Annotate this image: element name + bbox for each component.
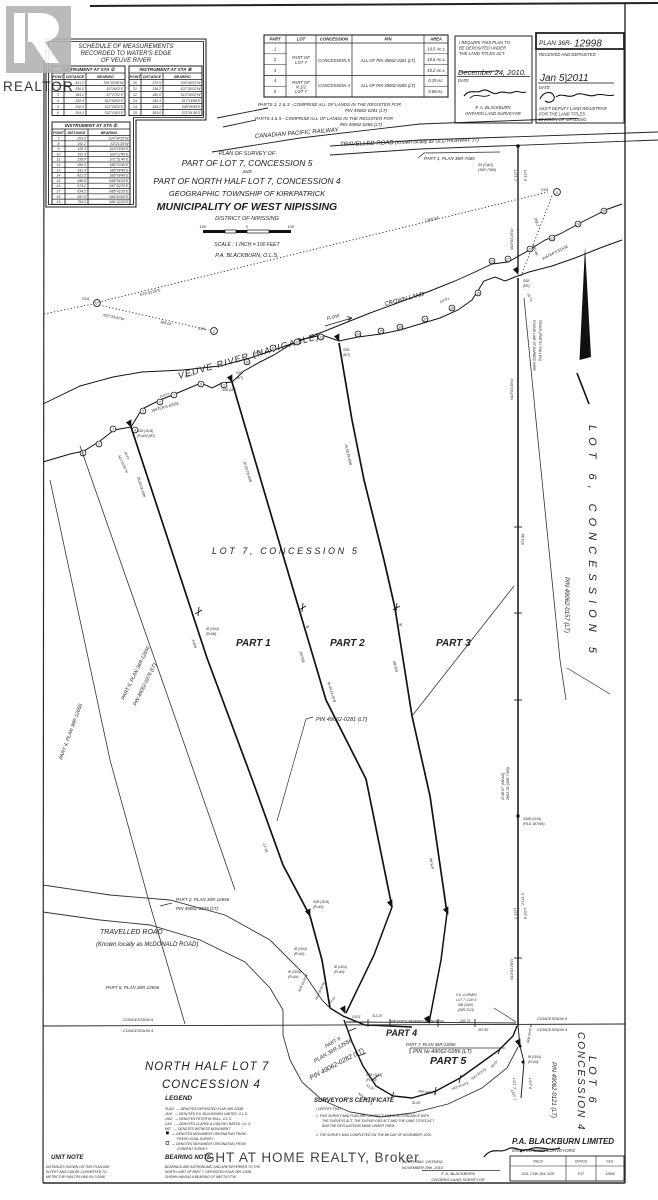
svg-text:2: 2	[97, 442, 100, 446]
svg-text:PART 6, PLAN 36R-12656: PART 6, PLAN 36R-12656	[106, 985, 160, 990]
svg-text:LOT 6: LOT 6	[528, 1078, 533, 1090]
svg-text:PARTS 4 & 5 - COMPRISE ALL OF: PARTS 4 & 5 - COMPRISE ALL OF LANDS IN T…	[255, 116, 394, 121]
svg-text:S24°44'20"W: S24°44'20"W	[109, 137, 130, 141]
svg-text:25: 25	[601, 209, 606, 213]
svg-text:6: 6	[57, 111, 59, 115]
svg-text:NORTH LIMIT OF PART 7, DEPOSIT: NORTH LIMIT OF PART 7, DEPOSITED PLAN 36…	[165, 1170, 252, 1174]
svg-text:239.0': 239.0'	[76, 158, 86, 162]
svg-text:14: 14	[356, 332, 360, 336]
svg-text:BEARINGS ARE ASTRONOMIC AND AR: BEARINGS ARE ASTRONOMIC AND ARE REFERRED…	[165, 1165, 261, 1169]
svg-text:12850: 12850	[605, 1172, 615, 1176]
svg-text:FILE: FILE	[606, 1160, 614, 1164]
svg-text:PIN 49062-0286 (LT): PIN 49062-0286 (LT)	[340, 122, 382, 127]
svg-text:128.3': 128.3'	[77, 147, 86, 151]
svg-text:N10°03'20"W: N10°03'20"W	[510, 378, 514, 400]
svg-text:PART OF LOT 7, CONCESSION 5: PART OF LOT 7, CONCESSION 5	[182, 158, 313, 168]
svg-text:634.2': 634.2'	[77, 190, 86, 194]
svg-text:FIELD: FIELD	[533, 1160, 543, 1164]
svg-text:8: 8	[556, 191, 558, 195]
svg-text:P. A. BLACKBURN: P. A. BLACKBURN	[475, 105, 511, 110]
svg-text:— DENOTES MONUMENT ORIGINATING: — DENOTES MONUMENT ORIGINATING FROM	[171, 1132, 246, 1136]
svg-text:DISTANCE: DISTANCE	[143, 75, 162, 79]
svg-text:PIN 49062-0121 (LT): PIN 49062-0121 (LT)	[550, 1062, 556, 1118]
svg-text:PIN 49062-0281 (LT): PIN 49062-0281 (LT)	[345, 108, 387, 113]
svg-text:CONCESSION 4: CONCESSION 4	[162, 1079, 261, 1091]
svg-text:ONTARIO LAND SURVEYORS: ONTARIO LAND SURVEYORS	[512, 1148, 575, 1153]
svg-text:UNIT NOTE: UNIT NOTE	[51, 1155, 84, 1161]
svg-text:24: 24	[132, 105, 137, 109]
svg-text:14: 14	[57, 174, 61, 178]
svg-text:LOT 7: LOT 7	[513, 170, 518, 182]
svg-text:LOT: LOT	[297, 37, 306, 42]
svg-text:N88°23'40"W (REFERENCE L BEARI: N88°23'40"W (REFERENCE L BEARING)	[390, 1019, 444, 1023]
svg-text:(WT): (WT)	[236, 376, 243, 380]
svg-text:FENCE (PARTLY FALLEN): FENCE (PARTLY FALLEN)	[538, 320, 542, 361]
svg-text:S37°35'02"W: S37°35'02"W	[181, 87, 202, 91]
svg-text:(MT): (MT)	[523, 284, 530, 288]
svg-text:ONTARIO LAND SURVEYOR: ONTARIO LAND SURVEYOR	[465, 111, 521, 116]
svg-text:NORTH HALF LOT 7: NORTH HALF LOT 7	[145, 1061, 269, 1073]
svg-text:S32°10'02"E: S32°10'02"E	[104, 111, 124, 115]
svg-text:0.35 Ac.: 0.35 Ac.	[428, 78, 443, 83]
svg-text:PIN 49062-0281 (LT): PIN 49062-0281 (LT)	[316, 717, 367, 723]
svg-text:(PLAN): (PLAN)	[294, 952, 304, 956]
svg-text:PJT: PJT	[578, 1172, 585, 1176]
svg-text:LOT 7, CONCESSION 5: LOT 7, CONCESSION 5	[212, 546, 359, 556]
svg-text:(PLAN): (PLAN)	[288, 975, 298, 979]
svg-text:S33°49'02"W: S33°49'02"W	[181, 81, 202, 85]
svg-text:PRIOR LEGAL SURVEY: PRIOR LEGAL SURVEY	[177, 1137, 214, 1141]
svg-text:PIN 49062-0275 (LT): PIN 49062-0275 (LT)	[176, 906, 218, 911]
svg-text:S70°01'58"E: S70°01'58"E	[181, 111, 201, 115]
svg-text:FOR THE LAND TITLES: FOR THE LAND TITLES	[539, 112, 585, 117]
svg-text:CONCESSION 4: CONCESSION 4	[575, 1032, 586, 1132]
svg-text:S.E. CORNER: S.E. CORNER	[456, 993, 477, 997]
svg-text:(PLAN): (PLAN)	[313, 905, 323, 909]
svg-text:DISTANCE: DISTANCE	[67, 131, 86, 135]
svg-text:LOT 7: LOT 7	[295, 60, 307, 65]
svg-text:LOT 6: LOT 6	[523, 908, 528, 920]
svg-text:SSB: SSB	[523, 279, 530, 283]
svg-text:AND: AND	[241, 169, 252, 174]
svg-text:PART 5: PART 5	[430, 1055, 467, 1067]
svg-text:15: 15	[57, 179, 61, 183]
svg-text:SCALE : 1 INCH = 100 FEET: SCALE : 1 INCH = 100 FEET	[214, 242, 280, 248]
svg-text:183.0': 183.0'	[152, 111, 161, 115]
svg-text:BE DEPOSITED UNDER: BE DEPOSITED UNDER	[459, 46, 506, 51]
svg-text:LOT 6: LOT 6	[586, 1056, 598, 1107]
svg-text:245.74': 245.74'	[459, 1019, 471, 1023]
svg-text:145.3': 145.3'	[152, 99, 161, 103]
svg-text:1: 1	[274, 47, 276, 52]
svg-text:(PLAN): (PLAN)	[334, 970, 344, 974]
svg-text:WIT — DENOTES WITNESS MONUME: WIT — DENOTES WITNESS MONUMENT	[165, 1127, 231, 1131]
svg-text:(PLAN): (PLAN)	[366, 1078, 376, 1082]
svg-text:P.A. BLACKBURN LIMITED: P.A. BLACKBURN LIMITED	[512, 1137, 614, 1146]
svg-text:N87°02'20"E: N87°02'20"E	[109, 184, 129, 188]
svg-text:16: 16	[398, 325, 402, 329]
svg-text:[PLAN]: [PLAN]	[205, 632, 216, 636]
svg-text:N81°43'20"E: N81°43'20"E	[109, 200, 129, 204]
svg-text:PLAN OF SURVEY OF: PLAN OF SURVEY OF	[219, 151, 276, 157]
svg-text:— DENOTES MONUMENT ORIGINATING: — DENOTES MONUMENT ORIGINATING FROM	[171, 1142, 246, 1146]
svg-text:STA: STA	[82, 297, 90, 301]
svg-text:PART 2, PLAN 36R-12656: PART 2, PLAN 36R-12656	[176, 897, 230, 902]
svg-text:PLAN 36R-: PLAN 36R-	[539, 40, 573, 47]
svg-text:PARTS 1, 2 & 3 - COMPRISE ALL: PARTS 1, 2 & 3 - COMPRISE ALL OF LANDS I…	[258, 102, 402, 107]
svg-text:OFFICE: OFFICE	[575, 1160, 588, 1164]
svg-text:10.5 Ac.±: 10.5 Ac.±	[427, 47, 445, 52]
svg-text:S17°18'58"E: S17°18'58"E	[181, 99, 201, 103]
svg-text:S89°08'40"E: S89°08'40"E	[109, 174, 129, 178]
svg-text:331.4': 331.4'	[77, 168, 86, 172]
svg-text:421.2': 421.2'	[75, 81, 84, 85]
svg-text:457.99': 457.99'	[478, 1028, 489, 1032]
svg-text:THE LAND TITLES ACT.: THE LAND TITLES ACT.	[459, 51, 505, 56]
svg-text:P.A. BLACKBURN, O.L.S.: P.A. BLACKBURN, O.L.S.	[215, 253, 278, 259]
svg-text:INSTRUMENT AT STA ②: INSTRUMENT AT STA ②	[65, 123, 118, 128]
svg-text:CONCESSION 4: CONCESSION 4	[537, 1027, 568, 1032]
svg-text:364.1': 364.1'	[75, 93, 84, 97]
svg-text:FOUND LINE OF BARBED WIRE: FOUND LINE OF BARBED WIRE	[532, 320, 536, 372]
svg-text:CONCESSION 4: CONCESSION 4	[123, 1028, 154, 1033]
svg-text:IB (1104): IB (1104)	[288, 970, 301, 974]
svg-text:318.3': 318.3'	[75, 105, 84, 109]
svg-text:51.69': 51.69'	[412, 1101, 421, 1105]
svg-text:THE SURVEYS ACT, THE SURVEYORS: THE SURVEYS ACT, THE SURVEYORS ACT AND T…	[322, 1119, 435, 1123]
svg-text:19: 19	[57, 200, 61, 204]
svg-text:12998: 12998	[574, 39, 602, 50]
svg-text:18: 18	[450, 306, 454, 310]
svg-text:1552 — DENOTES PETER M. BULL: 1552 — DENOTES PETER M. BULL, O.L.S.	[165, 1117, 232, 1121]
svg-text:324.3': 324.3'	[75, 111, 84, 115]
svg-text:0.88 Ac.: 0.88 Ac.	[428, 89, 443, 94]
svg-text:(FILE 187096): (FILE 187096)	[523, 822, 545, 826]
svg-text:100': 100'	[199, 225, 206, 229]
svg-text:269.3': 269.3'	[76, 163, 86, 167]
svg-text:13: 13	[57, 168, 61, 172]
svg-text:SIB (1002): SIB (1002)	[458, 1003, 473, 1007]
svg-text:S85°08'40"E: S85°08'40"E	[109, 168, 129, 172]
svg-text:N10°03'20"W: N10°03'20"W	[510, 228, 514, 250]
svg-text:313.25': 313.25'	[372, 1014, 383, 1018]
svg-text:2. THE SURVEY WAS COMPLETED ON: 2. THE SURVEY WAS COMPLETED ON THE 8th D…	[315, 1133, 432, 1137]
svg-text:DISTRICT OF NIPISSING: DISTRICT OF NIPISSING	[215, 216, 279, 222]
svg-text:INSTRUMENT AT STA ⑧: INSTRUMENT AT STA ⑧	[139, 67, 192, 72]
svg-text:6: 6	[159, 400, 161, 404]
svg-text:21: 21	[132, 87, 137, 91]
svg-text:DATE: DATE	[458, 78, 469, 83]
svg-text:7: 7	[173, 393, 175, 397]
svg-text:POINT: POINT	[130, 75, 142, 79]
svg-text:2'141.5: 2'141.5	[521, 893, 525, 906]
svg-text:24: 24	[575, 222, 580, 226]
svg-text:GEOGRAPHIC TOWNSHIP OF KIRKPAT: GEOGRAPHIC TOWNSHIP OF KIRKPATRICK	[169, 189, 326, 198]
svg-text:15: 15	[379, 329, 383, 333]
svg-text:536.2': 536.2'	[75, 87, 84, 91]
svg-text:S3°21'20"W: S3°21'20"W	[110, 142, 129, 146]
svg-text:9: 9	[223, 383, 225, 387]
svg-text:NOVEMBER 29th, 2010: NOVEMBER 29th, 2010	[402, 1166, 444, 1170]
svg-text:PIN 49062-0157 (LT): PIN 49062-0157 (LT)	[563, 577, 569, 633]
svg-text:SSB: SSB	[236, 371, 243, 375]
svg-text:S13°35'02"W: S13°35'02"W	[181, 93, 202, 97]
svg-text:10.03': 10.03'	[352, 1015, 361, 1019]
svg-text:BEARING: BEARING	[97, 75, 114, 79]
svg-text:328.5': 328.5'	[75, 99, 84, 103]
svg-text:2: 2	[212, 330, 215, 334]
svg-text:PART 4: PART 4	[386, 1028, 417, 1038]
svg-text:10: 10	[245, 360, 249, 364]
svg-text:22: 22	[132, 93, 137, 97]
svg-text:PART: PART	[269, 37, 280, 42]
svg-text:CONCESSION 4: CONCESSION 4	[318, 83, 350, 88]
svg-text:10.6 Ac.±: 10.6 Ac.±	[427, 57, 445, 62]
svg-text:LOT 7: LOT 7	[295, 89, 307, 94]
svg-text:MUNICIPALITY OF WEST NIPISSING: MUNICIPALITY OF WEST NIPISSING	[157, 201, 337, 213]
svg-text:5: 5	[142, 409, 144, 413]
svg-text:S34°22'40"E: S34°22'40"E	[109, 152, 129, 156]
svg-text:CONCESSION 5: CONCESSION 5	[537, 1016, 568, 1021]
svg-text:DATE: DATE	[539, 85, 550, 90]
svg-text:CAO — DENOTES CLARKE & OGILV: CAO — DENOTES CLARKE & OGILVIE LIMITED, …	[165, 1122, 251, 1126]
svg-text:S13°54'02"E: S13°54'02"E	[104, 99, 124, 103]
svg-text:4: 4	[134, 428, 136, 432]
svg-text:GHT AT HOME REALTY, Broker: GHT AT HOME REALTY, Broker	[204, 1150, 420, 1165]
svg-text:N85°42'20"E: N85°42'20"E	[109, 190, 129, 194]
svg-text:59 (CAO): 59 (CAO)	[478, 163, 493, 167]
svg-text:25: 25	[132, 111, 137, 115]
svg-text:AND THE REGULATIONS MADE UNDER: AND THE REGULATIONS MADE UNDER THEM.	[321, 1124, 395, 1128]
svg-text:S48°05'58"E: S48°05'58"E	[181, 105, 201, 109]
svg-text:ALL OF PIN 49062-0281 (LT): ALL OF PIN 49062-0281 (LT)	[360, 58, 416, 63]
svg-text:PART 2: PART 2	[330, 638, 365, 649]
svg-text:17: 17	[423, 317, 427, 321]
svg-text:IB (1104): IB (1104)	[294, 947, 307, 951]
svg-text:974.00': 974.00'	[521, 533, 525, 545]
svg-text:(Known locally as McDONALD ROA: (Known locally as McDONALD ROAD)	[96, 942, 198, 948]
svg-text:DISTANCES SHOWN ON THIS PLAN A: DISTANCES SHOWN ON THIS PLAN ARE	[46, 1165, 110, 1169]
svg-text:(36R-7121): (36R-7121)	[458, 1008, 474, 1012]
svg-text:S0°36'02"E: S0°36'02"E	[106, 87, 124, 91]
svg-text:RECEIVED AND DEPOSITED: RECEIVED AND DEPOSITED	[539, 52, 596, 57]
svg-text:STA: STA	[198, 327, 206, 331]
svg-text:REALTOR: REALTOR	[3, 79, 74, 94]
svg-text:4: 4	[57, 99, 59, 103]
svg-text:209.0': 209.0'	[76, 137, 86, 141]
svg-text:OF VEUVE RIVER: OF VEUVE RIVER	[101, 58, 152, 64]
svg-text:CONCESSION 5: CONCESSION 5	[123, 1017, 154, 1022]
svg-text:PART 7, PLAN 36R-12656: PART 7, PLAN 36R-12656	[406, 1042, 456, 1047]
svg-text:3: 3	[112, 427, 114, 431]
svg-text:498.5': 498.5'	[77, 179, 86, 183]
svg-text:AREA: AREA	[429, 37, 442, 42]
svg-text:23: 23	[549, 236, 554, 240]
svg-text:SSB: SSB	[343, 348, 350, 352]
svg-text:CONCESSION: CONCESSION	[320, 37, 349, 42]
svg-text:METRICS BY MULTIPLYING BY 0.30: METRICS BY MULTIPLYING BY 0.3048.	[46, 1175, 106, 1179]
svg-text:18: 18	[57, 195, 61, 199]
svg-text:152.2': 152.2'	[77, 142, 86, 146]
svg-text:9: 9	[58, 147, 60, 151]
svg-text:N10°03'20"W: N10°03'20"W	[510, 958, 514, 980]
svg-text:23: 23	[132, 99, 137, 103]
svg-text:21: 21	[505, 257, 510, 261]
svg-text:IB (1104): IB (1104)	[528, 1055, 541, 1059]
svg-text:7: 7	[58, 137, 60, 141]
svg-text:S22°28'02"E: S22°28'02"E	[104, 105, 124, 109]
svg-text:ALL OF PIN 49062-0286 (LT): ALL OF PIN 49062-0286 (LT)	[360, 83, 416, 88]
svg-text:PLAN — DENOTES DEPOSITED PLA: PLAN — DENOTES DEPOSITED PLAN 36R-12656	[165, 1107, 243, 1111]
svg-text:December 24, 2010.: December 24, 2010.	[458, 68, 526, 77]
svg-text:(36R-7365): (36R-7365)	[478, 168, 496, 172]
svg-text:SCHEDULE OF MEASUREMENTS: SCHEDULE OF MEASUREMENTS	[79, 44, 174, 50]
svg-text:5: 5	[57, 105, 59, 109]
svg-text:20: 20	[132, 81, 137, 85]
svg-text:TRAVELLED ROAD: TRAVELLED ROAD	[100, 929, 163, 936]
svg-text:ONTARIO LAND SURVEYOR: ONTARIO LAND SURVEYOR	[431, 1177, 484, 1182]
svg-text:PART 3: PART 3	[436, 638, 471, 649]
svg-text:238.2': 238.2'	[151, 87, 161, 91]
svg-text:JGS, CSW, DW, SGR: JGS, CSW, DW, SGR	[521, 1172, 555, 1176]
svg-text:LOT 6: LOT 6	[523, 170, 528, 182]
svg-text:SSIB (1104): SSIB (1104)	[523, 817, 541, 821]
svg-text:S7°27'02"E: S7°27'02"E	[106, 93, 124, 97]
svg-text:753.2': 753.2'	[77, 200, 86, 204]
svg-text:I CERTIFY THAT:: I CERTIFY THAT:	[316, 1107, 342, 1111]
svg-text:11: 11	[271, 346, 275, 350]
svg-text:17: 17	[57, 190, 61, 194]
svg-text:SSB (1104): SSB (1104)	[366, 1073, 382, 1077]
svg-text:19: 19	[476, 291, 480, 295]
svg-text:SSB (1104): SSB (1104)	[313, 900, 329, 904]
svg-text:8: 8	[200, 382, 202, 386]
svg-text:1. THIS SURVEY AND PLAN ARE CO: 1. THIS SURVEY AND PLAN ARE CORRECT AND …	[316, 1114, 430, 1118]
svg-text:(WT): (WT)	[343, 353, 350, 357]
svg-text:IN FEET AND CAN BE CONVERTED T: IN FEET AND CAN BE CONVERTED TO	[46, 1170, 107, 1174]
svg-text:LOT 6, CONCESSION 5: LOT 6, CONCESSION 5	[586, 425, 598, 659]
svg-text:POINT: POINT	[53, 131, 65, 135]
svg-text:S51°00'58"W: S51°00'58"W	[104, 81, 125, 85]
svg-text:(PLAN): (PLAN)	[528, 1060, 538, 1064]
svg-text:LEGEND: LEGEND	[165, 1095, 192, 1102]
svg-text:13: 13	[319, 335, 323, 339]
svg-text:Jan 5|2011: Jan 5|2011	[539, 73, 589, 84]
svg-text:421.5': 421.5'	[77, 174, 86, 178]
svg-text:574.2': 574.2'	[77, 184, 86, 188]
svg-text:270.5': 270.5'	[151, 81, 161, 85]
svg-text:LOT 7: LOT 7	[513, 908, 518, 920]
svg-text:BEARING: BEARING	[101, 131, 118, 135]
svg-text:PIN: PIN	[385, 37, 393, 42]
svg-text:SSB (MT): SSB (MT)	[222, 388, 236, 392]
svg-text:BEARING: BEARING	[174, 75, 191, 79]
svg-text:10.2 Ac.±: 10.2 Ac.±	[427, 68, 445, 73]
svg-text:S80°23'40"E: S80°23'40"E	[109, 163, 129, 167]
svg-text:STA: STA	[541, 188, 549, 192]
svg-text:S71°51'40"E: S71°51'40"E	[109, 158, 129, 162]
svg-text:1104 — DENOTES P.A. BLACKBUR: 1104 — DENOTES P.A. BLACKBURN LIMITED, O…	[165, 1112, 248, 1116]
svg-text:LOT 7, CON 5: LOT 7, CON 5	[456, 998, 477, 1002]
svg-text:N88°56'20"E: N88°56'20"E	[109, 179, 129, 183]
svg-text:100': 100'	[287, 225, 294, 229]
svg-text:20: 20	[489, 259, 494, 263]
svg-text:12: 12	[295, 340, 299, 344]
svg-text:RECORDED TO WATER'S EDGE: RECORDED TO WATER'S EDGE	[81, 51, 173, 57]
svg-text:151.4': 151.4'	[77, 152, 86, 156]
svg-text:N84°03'20"E: N84°03'20"E	[109, 195, 129, 199]
svg-text:12: 12	[57, 163, 61, 167]
svg-text:SURVEYOR'S CERTIFICATE: SURVEYOR'S CERTIFICATE	[314, 1098, 395, 1104]
svg-text:2663.70' (36R-7365): 2663.70' (36R-7365)	[506, 767, 510, 801]
svg-text:697.6': 697.6'	[77, 195, 86, 199]
svg-text:(PLAN) (MT): (PLAN) (MT)	[137, 434, 155, 438]
svg-text:PART 1: PART 1	[236, 638, 271, 649]
svg-text:PART 1, PLAN 36R-7365: PART 1, PLAN 36R-7365	[424, 156, 475, 161]
svg-text:169.2': 169.2'	[152, 105, 161, 109]
svg-text:S19°29'40"E: S19°29'40"E	[109, 147, 129, 151]
svg-text:11: 11	[57, 158, 61, 162]
svg-text:8: 8	[58, 142, 60, 146]
svg-text:CONCESSION 5: CONCESSION 5	[318, 58, 350, 63]
svg-text:10: 10	[57, 152, 61, 156]
svg-text:180.6': 180.6'	[152, 93, 161, 97]
svg-text:ASS'T DEPUTY LAND REGISTRAR: ASS'T DEPUTY LAND REGISTRAR	[538, 106, 607, 111]
svg-text:PART OF NORTH HALF LOT 7, CONC: PART OF NORTH HALF LOT 7, CONCESSION 4	[153, 176, 340, 186]
svg-text:16: 16	[57, 184, 61, 188]
svg-text:IB (1104): IB (1104)	[206, 627, 219, 631]
svg-text:22: 22	[527, 247, 532, 251]
svg-text:2748.97' (MEAS): 2748.97' (MEAS)	[501, 773, 505, 801]
svg-text:P. A. BLACKBURN: P. A. BLACKBURN	[441, 1171, 475, 1176]
svg-text:SSB (1104): SSB (1104)	[137, 429, 153, 433]
svg-text:I REQUIRE THIS PLAN TO: I REQUIRE THIS PLAN TO	[459, 40, 511, 45]
svg-text:SHOWN HAVING A BEARING OF N85°: SHOWN HAVING A BEARING OF N85°20'07"W.	[165, 1175, 236, 1179]
svg-text:IB (1104): IB (1104)	[334, 965, 347, 969]
